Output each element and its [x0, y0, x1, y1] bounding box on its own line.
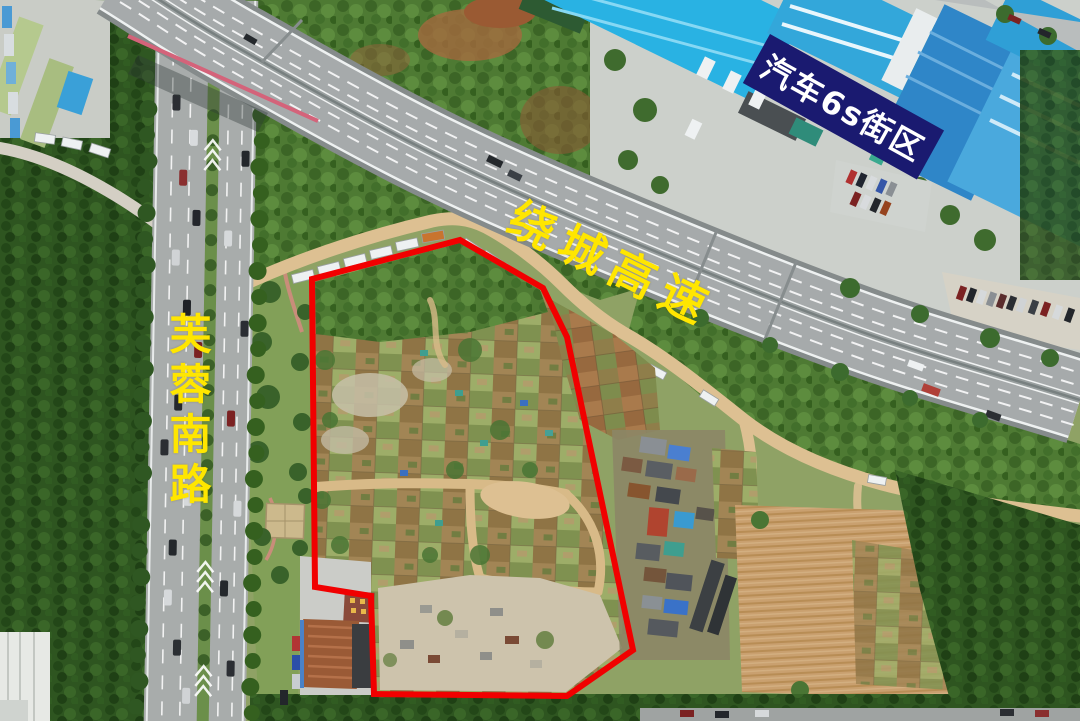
aerial-site-map: 绕城高速 芙蓉南路 汽车6s街区: [0, 0, 1080, 721]
white-building-sw: [0, 632, 50, 721]
bottom-trees: [250, 694, 1080, 721]
road-label: 芙蓉南路: [157, 312, 218, 512]
bus-depot: [0, 0, 110, 148]
cleared-ground: [378, 575, 622, 692]
